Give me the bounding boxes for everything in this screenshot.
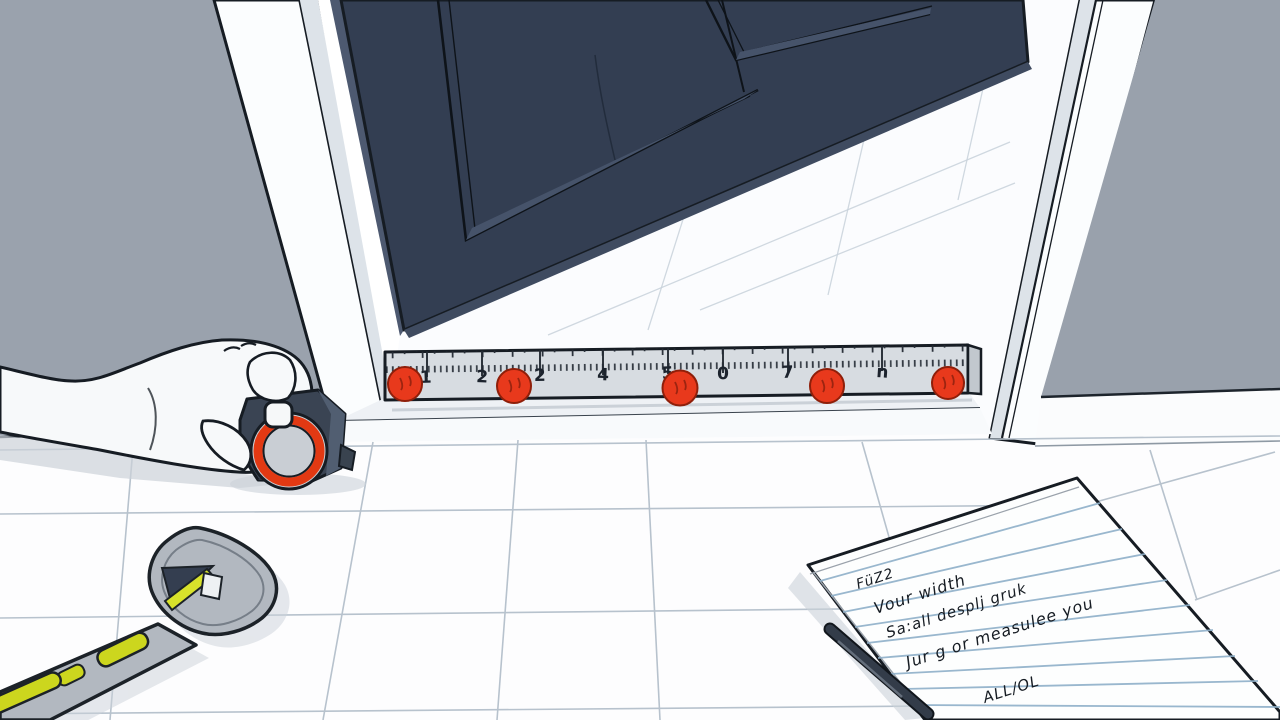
ruler-end-face <box>968 345 981 394</box>
ruler-number: 2 <box>534 366 546 386</box>
ruler-number: n <box>876 362 889 383</box>
illustration-measuring-doorway: FüZ2 Vour width Sa:all desplj gruk Jur g… <box>0 0 1280 720</box>
level-pointer-clip <box>201 573 222 599</box>
ruler-number: 0 <box>717 364 729 384</box>
red-dot <box>663 371 698 406</box>
scene-canvas: FüZ2 Vour width Sa:all desplj gruk Jur g… <box>0 0 1280 720</box>
red-dot <box>932 367 964 399</box>
red-dot <box>388 367 422 401</box>
index-finger <box>248 353 296 401</box>
ruler-number: 4 <box>597 365 610 385</box>
ruler-number: 7 <box>781 363 794 383</box>
tape-lock-button <box>265 402 292 427</box>
red-dot <box>497 369 531 403</box>
ruler-number: 2 <box>476 367 489 388</box>
red-dot <box>810 369 844 403</box>
